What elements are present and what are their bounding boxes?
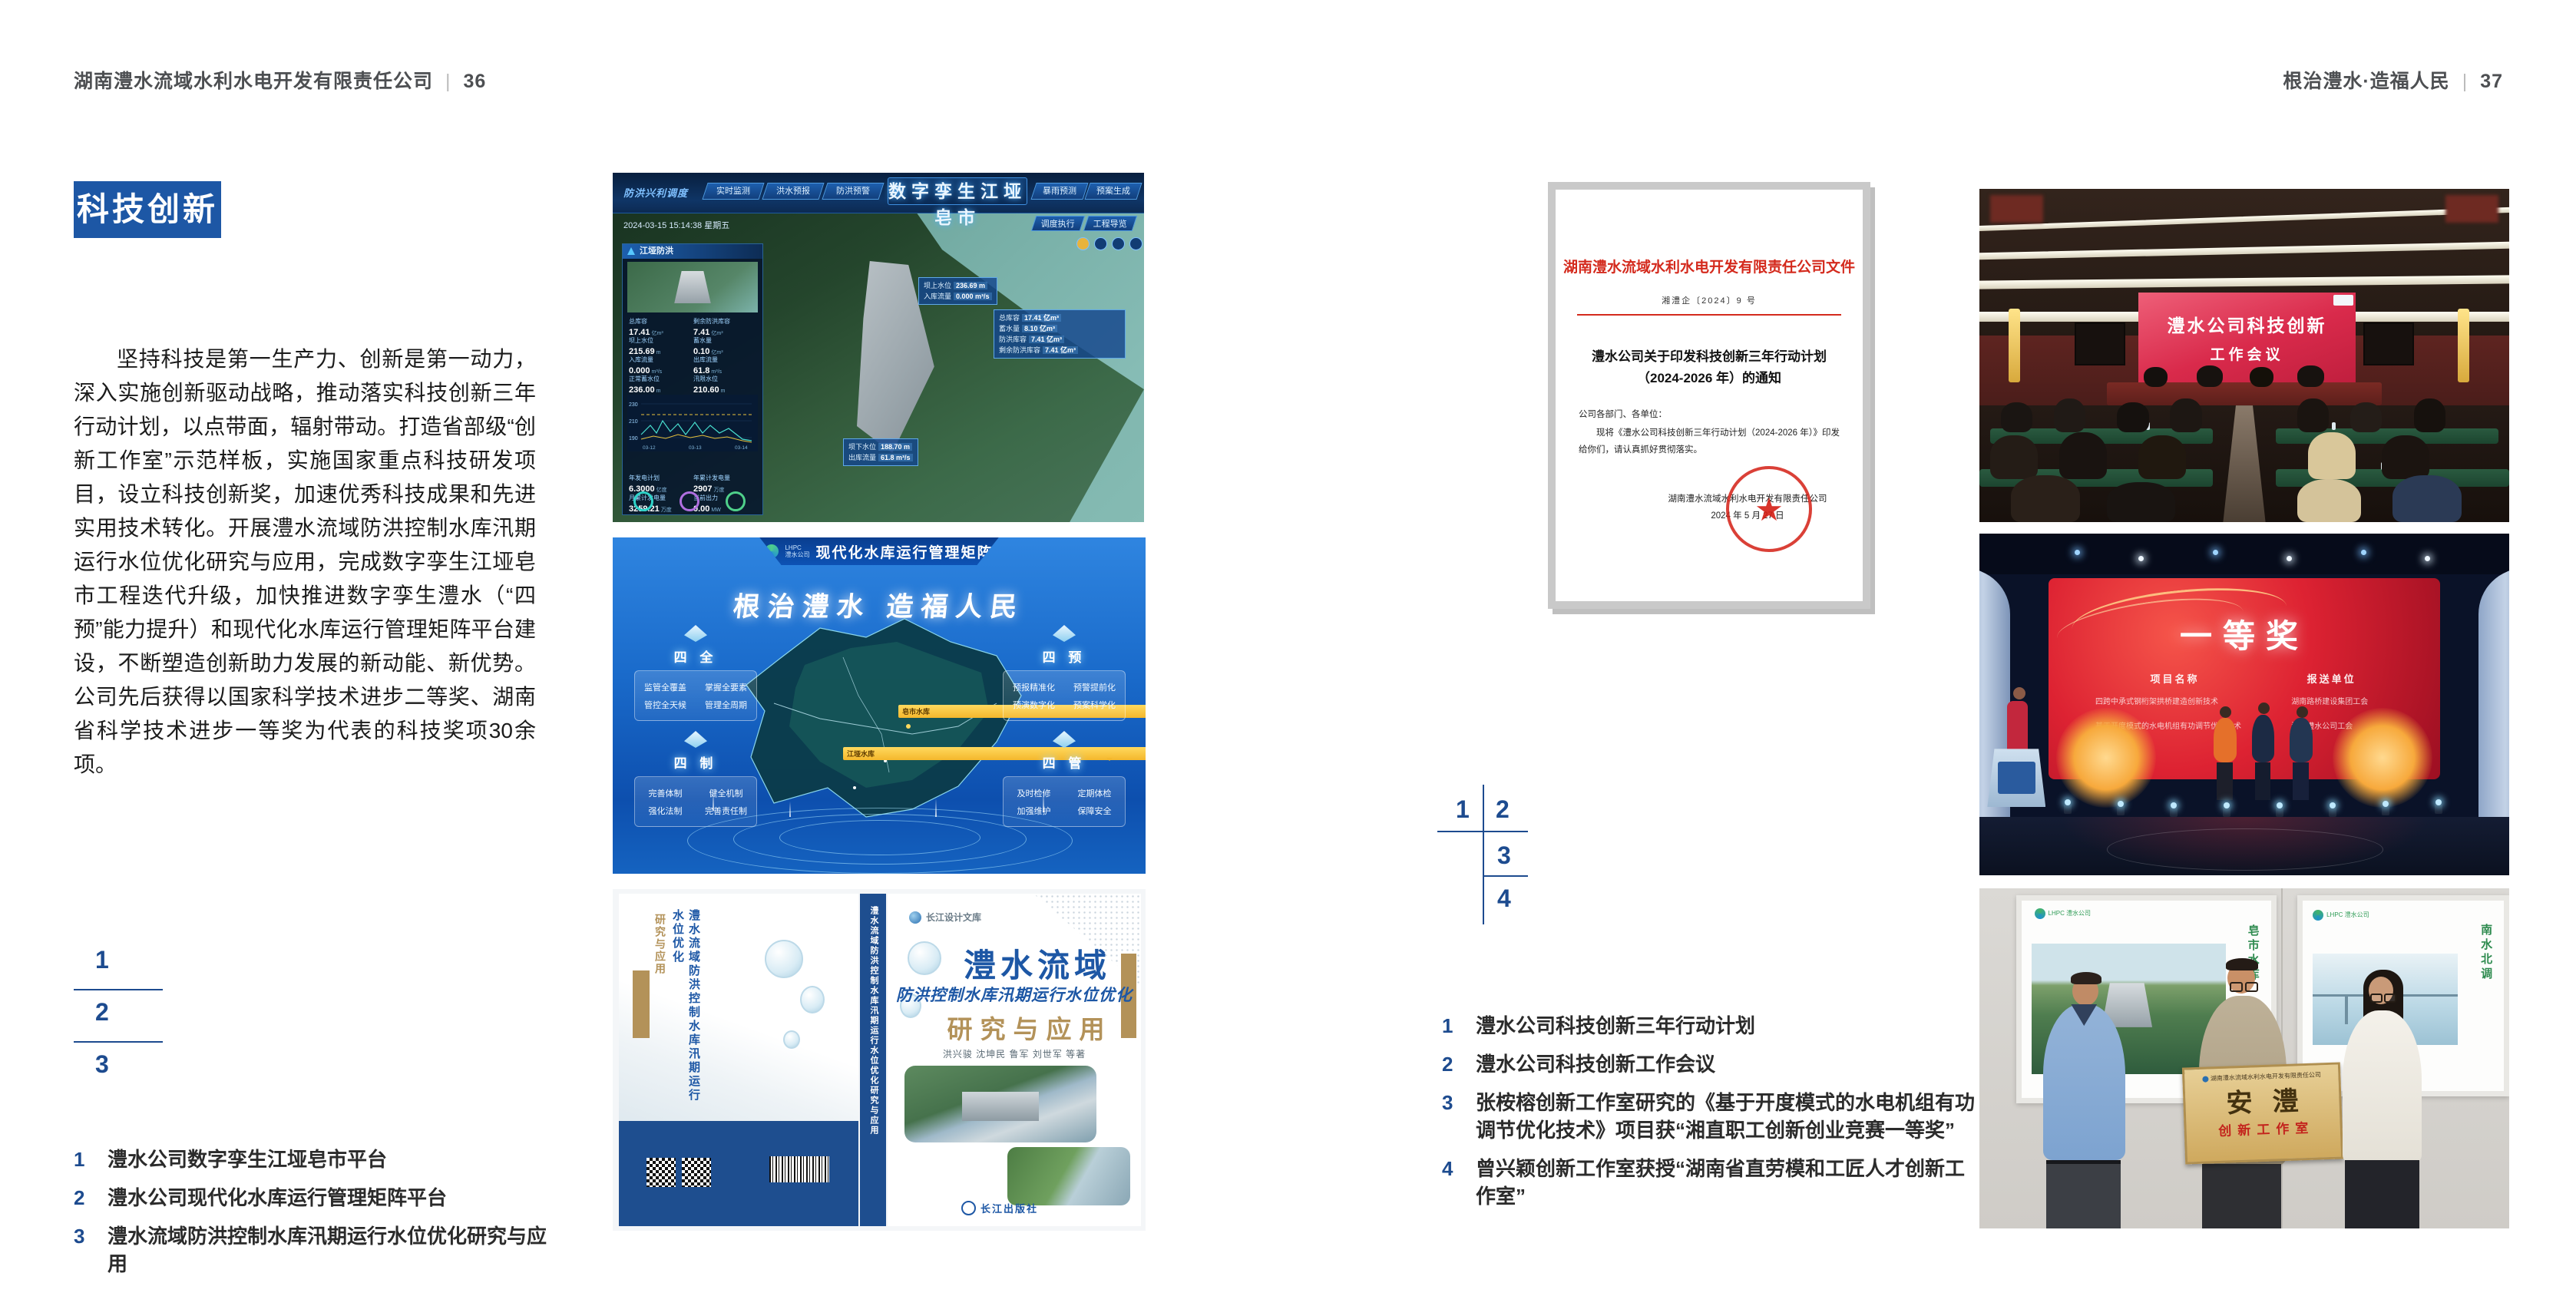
attendee-silhouette — [2170, 398, 2201, 431]
award-org-1: 湖南路桥建设集团工会 — [2291, 695, 2368, 706]
podium — [1987, 749, 2045, 807]
attendee-silhouette — [2297, 398, 2329, 431]
stage-rigging — [1979, 534, 2509, 574]
gauge-unit3 — [726, 491, 746, 511]
book-back-cover: 研究与应用 澧水流域防洪控制水库汛期运行水位优化 — [619, 894, 858, 1121]
awardee-legs — [2255, 762, 2271, 800]
dashboard-title: 数字孪生江垭皂市 — [888, 177, 1027, 205]
reservoir-info-tag: 总库容17.41 亿m³ 蓄水量8.10 亿m³ 防洪库容7.41 亿m³ 剩余… — [994, 309, 1126, 359]
back-subtitle-vertical: 研究与应用 — [653, 914, 668, 1106]
monitor-icon — [684, 625, 707, 642]
caption-row: 2澧水公司科技创新工作会议 — [1442, 1050, 1979, 1078]
stage-light — [2435, 804, 2442, 814]
figure-award-photo: 一等奖 项目名称 报送单位 四跨中承式钢桁架拱桥建造创新技术 湖南路桥建设集团工… — [1979, 534, 2509, 875]
svg-text:190: 190 — [629, 436, 638, 441]
water-drop — [800, 986, 825, 1013]
wall-light-right — [2458, 309, 2469, 382]
layer-icon — [1094, 237, 1107, 250]
attendee-silhouette — [2350, 402, 2382, 432]
tab-dispatch-exec: 调度执行 — [1031, 216, 1085, 231]
spine-title-vertical: 澧水流域防洪控制水库汛期运行水位优化研究与应用 — [868, 906, 880, 1198]
figure-official-document: 湖南澧水流域水利水电开发有限责任公司文件 湘澧企〔2024〕9 号 澧水公司关于… — [1548, 182, 1870, 609]
maintenance-icon — [1053, 731, 1076, 748]
dashboard-corner-label: 防洪兴利调度 — [623, 185, 688, 200]
person-trousers — [2202, 1164, 2282, 1228]
unit-gauges — [633, 491, 746, 511]
svg-text:03-13: 03-13 — [689, 445, 702, 451]
figure-index-rule — [1483, 875, 1528, 877]
caption-text: 澧水公司科技创新工作会议 — [1476, 1050, 1715, 1078]
person-hair — [2071, 972, 2101, 984]
dam-photo — [904, 1066, 1096, 1142]
group-siguan: 四 管 及时检修定期体检 加强维护保障安全 — [1003, 731, 1126, 827]
gold-glow — [2056, 708, 2156, 808]
stage-light — [2382, 805, 2389, 815]
svg-text:03-12: 03-12 — [643, 445, 656, 451]
gauge-unit1 — [633, 491, 653, 511]
stage-floor — [1979, 817, 2509, 875]
svg-text:230: 230 — [629, 402, 638, 408]
caption-number: 1 — [1442, 1012, 1476, 1040]
svg-text:03-14: 03-14 — [735, 445, 748, 451]
attendee-silhouette — [2059, 432, 2107, 479]
tab-rain-forecast: 暴雨预测 — [1030, 183, 1088, 200]
screen-line1: 澧水公司科技创新 — [2167, 311, 2326, 337]
lhpc-logo-icon — [765, 544, 779, 558]
dam-thumbnail — [627, 262, 758, 312]
wall-light-left — [2009, 309, 2020, 382]
caption-number: 1 — [74, 1146, 107, 1173]
slogan-text: 根治澧水·造福人民 — [2283, 71, 2449, 92]
person-white-tee — [2343, 1010, 2422, 1163]
figure-index-3: 3 — [95, 1050, 109, 1079]
award-title: 一等奖 — [2049, 610, 2441, 657]
dam-photo-small — [1007, 1147, 1130, 1205]
lhpc-logo-text: LHPC澧水公司 — [785, 544, 809, 558]
locate-icon — [1112, 237, 1125, 250]
person-trousers — [2345, 1160, 2419, 1228]
gold-glow — [2333, 708, 2432, 808]
left-caption-list: 1澧水公司数字孪生江垭皂市平台 2澧水公司现代化水库运行管理矩阵平台 3澧水流域… — [74, 1146, 565, 1288]
document-red-header: 湖南澧水流域水利水电开发有限责任公司文件 — [1556, 256, 1863, 276]
book-title-sub: 防洪控制水库汛期运行水位优化 — [888, 983, 1141, 1006]
glasses-icon — [2245, 982, 2258, 992]
document-body: 现将《澧水公司科技创新三年行动计划（2024-2026 年）》印发给你们，请认真… — [1579, 425, 1840, 458]
glasses-icon — [2384, 994, 2396, 1003]
caption-number: 2 — [1442, 1050, 1476, 1078]
stage-light — [2064, 804, 2072, 814]
caption-row: 3张桉榕创新工作室研究的《基于开度模式的水电机组有功调节优化技术》项目获“湘直职… — [1442, 1089, 1979, 1144]
back-bottom-band — [619, 1121, 858, 1226]
book-title-main: 澧水流域 — [888, 940, 1141, 987]
led-screen: 一等奖 项目名称 报送单位 四跨中承式钢桁架拱桥建造创新技术 湖南路桥建设集团工… — [2049, 578, 2441, 780]
attendee-silhouette — [2054, 398, 2085, 431]
document-number: 湘澧企〔2024〕9 号 — [1556, 294, 1863, 306]
caption-text: 澧水公司数字孪生江垭皂市平台 — [107, 1146, 387, 1173]
document-red-rule — [1577, 314, 1841, 316]
svg-text:210: 210 — [629, 419, 638, 425]
figure-digital-twin-dashboard: 防洪兴利调度 实时监测 洪水预报 防洪预警 数字孪生江垭皂市 暴雨预测 预案生成… — [613, 173, 1144, 522]
stage-light — [2223, 807, 2230, 817]
figure-index-rule — [1437, 831, 1528, 832]
poster-logo: LHPC 澧水公司 — [2035, 908, 2092, 919]
book-title-tag: 研究与应用 — [888, 1009, 1141, 1046]
document-page: 湖南澧水流域水利水电开发有限责任公司文件 湘澧企〔2024〕9 号 澧水公司关于… — [1556, 190, 1863, 601]
figure-index-vrule — [1483, 785, 1484, 924]
section-paragraph: 坚持科技是第一生产力、创新是第一动力，深入实施创新驱动战略，推动落实科技创新三年… — [74, 342, 536, 782]
publisher-mark: 长江出版社 — [961, 1201, 1038, 1215]
barcode — [769, 1156, 829, 1182]
attendee-silhouette — [2414, 398, 2445, 431]
figure-meeting-photo: 澧水公司科技创新 工作会议 — [1979, 189, 2509, 522]
book-front-cover: 长江设计文库 澧水流域 防洪控制水库汛期运行水位优化 研究与应用 洪兴骏 沈坤民… — [888, 894, 1141, 1226]
figure-index-rule — [74, 989, 163, 990]
figure-index-4: 4 — [1497, 884, 1511, 913]
attendee-silhouette — [2138, 435, 2186, 478]
awardee-legs — [2217, 762, 2233, 800]
figure-index-3: 3 — [1497, 841, 1511, 870]
side-display-right — [2363, 322, 2414, 365]
person-trousers — [2046, 1160, 2121, 1228]
lhpc-logo-icon — [2313, 910, 2323, 921]
tab-project-tour: 工程导览 — [1083, 216, 1137, 231]
poster-right-calligraphy: 南水北调 — [2478, 924, 2494, 1057]
stage-light — [2117, 805, 2125, 815]
section-title: 科技创新 — [74, 181, 221, 238]
attendee-khaki-silhouette — [2297, 479, 2361, 522]
speaker-silhouette — [2250, 367, 2273, 387]
water-drop — [783, 1030, 800, 1049]
award-col-org: 报送单位 — [2307, 671, 2356, 686]
dashboard-header: 防洪兴利调度 实时监测 洪水预报 防洪预警 数字孪生江垭皂市 暴雨预测 预案生成 — [613, 173, 1144, 213]
stage-light — [2170, 807, 2178, 817]
publisher-logo-icon — [961, 1201, 976, 1215]
attendee-silhouette — [2117, 402, 2148, 432]
group-sizhi: 四 制 完善体制健全机制 强化法制完善责任制 — [634, 731, 757, 827]
caption-row: 2澧水公司现代化水库运行管理矩阵平台 — [74, 1184, 565, 1212]
forecast-icon — [1053, 625, 1076, 642]
plaque-logo-icon — [2201, 1076, 2207, 1082]
awardee-suit — [2252, 715, 2275, 762]
awardee-head — [2297, 706, 2308, 718]
award-col-project: 项目名称 — [2150, 671, 2199, 686]
lhpc-logo-icon — [2035, 908, 2045, 919]
attendee-silhouette — [2392, 475, 2462, 522]
group-siquan: 四 全 监管全覆盖掌握全要素 管控全天候管理全周期 — [634, 625, 757, 721]
user-icon — [1076, 237, 1090, 250]
caption-row: 1澧水公司数字孪生江垭皂市平台 — [74, 1146, 565, 1173]
seal-star-icon: ★ — [1754, 491, 1784, 528]
attendee-silhouette — [2382, 435, 2429, 478]
tab-flood-forecast: 洪水预报 — [762, 183, 824, 200]
innovation-plaque: 湖南澧水流域水利水电开发有限责任公司 安澧 创新工作室 — [2182, 1063, 2343, 1165]
caption-text: 澧水公司现代化水库运行管理矩阵平台 — [107, 1184, 447, 1212]
awardee-legs — [2293, 762, 2309, 800]
book-spine: 澧水流域防洪控制水库汛期运行水位优化研究与应用 — [860, 894, 886, 1226]
left-page-header: 湖南澧水流域水利水电开发有限责任公司|36 — [74, 66, 486, 94]
person-hair — [2226, 958, 2258, 970]
awardee-orange-jacket — [2214, 718, 2237, 762]
figure-index-1: 1 — [1456, 795, 1470, 824]
right-page-header: 根治澧水·造福人民|37 — [1996, 66, 2503, 94]
glasses-icon — [2370, 994, 2383, 1003]
panel-title-jiangya-flood: 江垭防洪 — [623, 244, 762, 259]
settings-icon — [1129, 237, 1143, 250]
book-authors: 洪兴骏 沈坤民 鲁军 刘世军 等著 — [888, 1047, 1141, 1060]
water-level-chart: 230 210 190 03-12 03-13 03-14 — [627, 395, 758, 451]
caption-row: 4曾兴颖创新工作室获授“湖南省直劳模和工匠人才创新工作室” — [1442, 1155, 1979, 1210]
changjiang-logo-icon — [909, 911, 921, 924]
awardee-head — [2220, 706, 2231, 718]
stage-light — [2329, 807, 2336, 817]
water-drop — [765, 940, 803, 978]
figure-index-1: 1 — [95, 946, 109, 974]
qr-code — [646, 1158, 676, 1187]
caption-text: 张桉榕创新工作室研究的《基于开度模式的水电机组有功调节优化技术》项目获“湘直职工… — [1476, 1089, 1979, 1144]
attendee-silhouette — [2001, 402, 2032, 432]
figure-index-rule — [74, 1041, 163, 1043]
dashboard-toolbar-icons — [1076, 237, 1143, 250]
tab-plan-generate: 预案生成 — [1084, 183, 1142, 200]
tab-realtime-monitor: 实时监测 — [702, 183, 764, 200]
back-title-vertical: 澧水流域防洪控制水库汛期运行水位优化 — [670, 909, 702, 1109]
gauge-unit2 — [680, 491, 699, 511]
attendee-silhouette — [1990, 435, 2038, 478]
group-siyu: 四 预 预报精准化预警提前化 预演数字化预案科学化 — [1003, 625, 1126, 721]
page-number-36: 36 — [464, 71, 487, 92]
host-head — [2013, 687, 2025, 699]
caption-text: 澧水公司科技创新三年行动计划 — [1476, 1012, 1755, 1040]
matrix-title: 现代化水库运行管理矩阵 — [815, 541, 993, 562]
institution-icon — [684, 731, 707, 748]
poster-logo: LHPC 澧水公司 — [2313, 910, 2369, 921]
screen-logo — [2333, 295, 2353, 306]
side-display-left — [2075, 322, 2125, 365]
plaque-subtitle: 创新工作室 — [2211, 1117, 2314, 1140]
figure-workshop-photo: LHPC 澧水公司 皂市水库 LHPC 澧水公司 南水北调 — [1979, 888, 2509, 1228]
page-number-37: 37 — [2480, 71, 2503, 92]
speaker-silhouette — [2297, 365, 2324, 387]
attendee-silhouette — [2107, 482, 2176, 522]
qr-code — [682, 1158, 711, 1187]
document-salutation: 公司各部门、各单位： — [1579, 406, 1840, 423]
watershed-map — [728, 611, 1035, 826]
dashboard-timestamp: 2024-03-15 15:14:38 星期五 — [623, 219, 729, 231]
stage-light — [2276, 807, 2283, 817]
flood-data-panel: 江垭防洪 总库容17.41亿m³ 剩余防洪库容7.41亿m³ 坝上水位215.6… — [622, 243, 763, 515]
plaque-title: 安澧 — [2205, 1080, 2319, 1121]
caption-row: 3澧水流域防洪控制水库汛期运行水位优化研究与应用 — [74, 1222, 565, 1278]
awardee-jacket — [2290, 718, 2313, 762]
downstream-level-tag: 坝下水位188.70 m 出库流量61.8 m³/s — [843, 438, 918, 466]
person-blue-polo — [2043, 1004, 2125, 1161]
series-logo: 长江设计文库 — [909, 911, 981, 924]
meeting-screen: 澧水公司科技创新 工作会议 — [2138, 293, 2356, 382]
ripple-ring — [687, 808, 1073, 874]
attendee-khaki-silhouette — [2308, 432, 2356, 479]
tab-flood-warning: 防洪预警 — [822, 183, 884, 200]
attendee-silhouette — [2011, 475, 2080, 522]
document-title: 澧水公司关于印发科技创新三年行动计划（2024-2026 年）的通知 — [1579, 346, 1840, 389]
figure-index-2: 2 — [1496, 795, 1510, 824]
caption-number: 4 — [1442, 1155, 1476, 1210]
speaker-silhouette — [2197, 365, 2224, 387]
figure-index-2: 2 — [95, 998, 109, 1027]
red-seal: ★ — [1726, 466, 1812, 552]
back-tan-block — [633, 970, 650, 1038]
right-caption-list: 1澧水公司科技创新三年行动计划 2澧水公司科技创新工作会议 3张桉榕创新工作室研… — [1442, 1012, 1979, 1221]
brochure-spread: 湖南澧水流域水利水电开发有限责任公司|36 根治澧水·造福人民|37 科技创新 … — [0, 0, 2576, 1306]
award-project-1: 四跨中承式钢桁架拱桥建造创新技术 — [2095, 695, 2218, 706]
upstream-level-tag: 坝上水位236.69 m 入库流量0.000 m³/s — [918, 277, 997, 305]
header-divider: | — [2462, 71, 2469, 92]
figure-book-cover: 研究与应用 澧水流域防洪控制水库汛期运行水位优化 澧水流域防洪控制水库汛期运行水… — [613, 889, 1146, 1231]
caption-number: 2 — [74, 1184, 107, 1212]
screen-line2: 工作会议 — [2210, 343, 2283, 364]
speaker-silhouette — [2144, 367, 2168, 387]
flood-stats-grid: 总库容17.41亿m³ 剩余防洪库容7.41亿m³ 坝上水位215.69m 蓄水… — [629, 318, 758, 392]
glasses-icon — [2230, 982, 2243, 992]
caption-number: 3 — [1442, 1089, 1476, 1144]
caption-row: 1澧水公司科技创新三年行动计划 — [1442, 1012, 1979, 1040]
company-name: 湖南澧水流域水利水电开发有限责任公司 — [74, 71, 433, 92]
matrix-header: LHPC澧水公司 现代化水库运行管理矩阵 — [743, 537, 1015, 565]
caption-text: 曾兴颖创新工作室获授“湖南省直劳模和工匠人才创新工作室” — [1476, 1155, 1979, 1210]
caption-text: 澧水流域防洪控制水库汛期运行水位优化研究与应用 — [107, 1222, 565, 1278]
figure-matrix-platform: LHPC澧水公司 现代化水库运行管理矩阵 根治澧水 造福人民 皂市水库 江垭水库… — [613, 537, 1146, 874]
header-divider: | — [445, 71, 451, 92]
caption-number: 3 — [74, 1222, 107, 1278]
